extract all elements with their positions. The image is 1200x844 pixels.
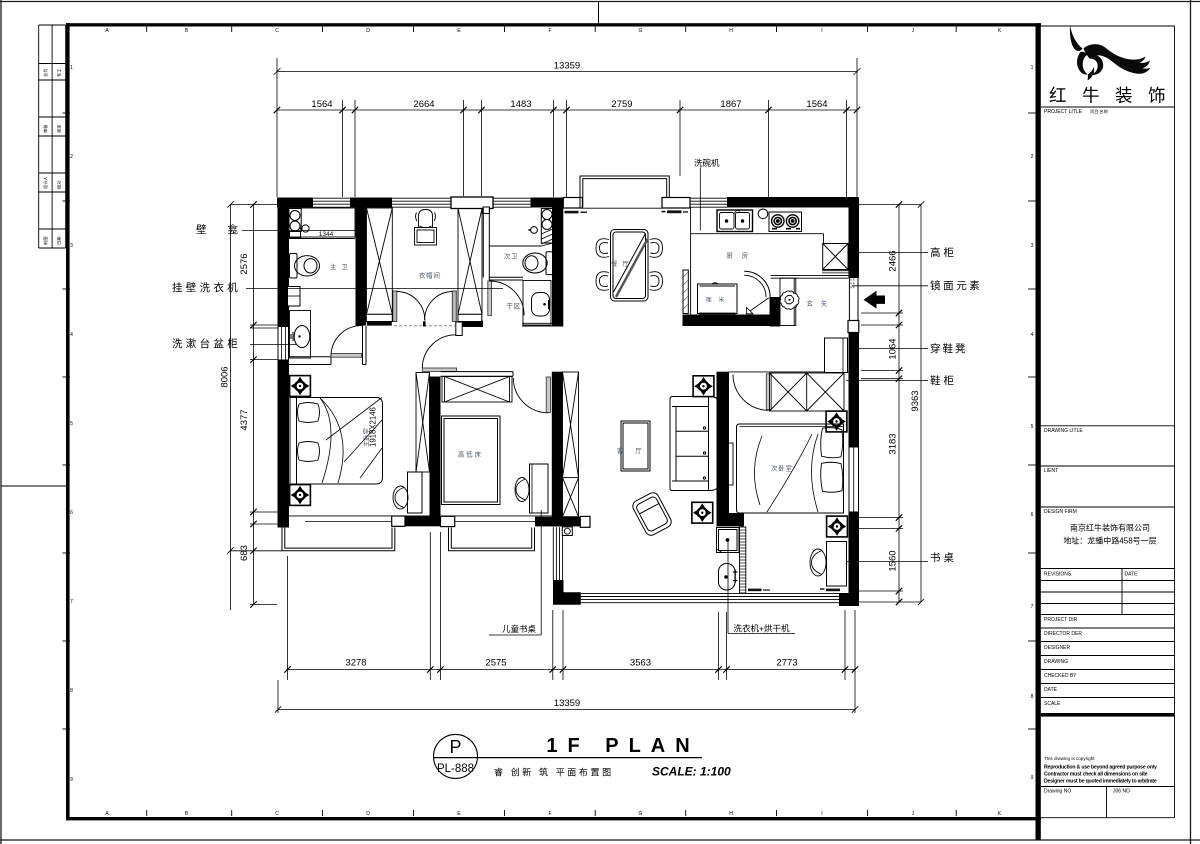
svg-text:3: 3	[1031, 243, 1034, 249]
svg-text:P: P	[449, 737, 461, 757]
svg-text:DESIGNER: DESIGNER	[1044, 645, 1071, 651]
svg-text:DIRECTOR DER: DIRECTOR DER	[1044, 631, 1082, 637]
svg-text:13359: 13359	[554, 698, 580, 709]
svg-text:主卧室: 主卧室	[362, 428, 371, 447]
svg-text:G: G	[639, 28, 643, 34]
svg-text:高低床: 高低床	[458, 450, 483, 459]
svg-text:1560: 1560	[888, 550, 899, 571]
svg-text:餐厅: 餐厅	[611, 259, 634, 268]
svg-text:F: F	[548, 28, 551, 34]
svg-text:2759: 2759	[611, 99, 632, 110]
svg-text:PROJECT LITLE: PROJECT LITLE	[1044, 109, 1083, 115]
svg-text:审核: 审核	[42, 124, 49, 133]
svg-text:SCALE: SCALE	[1044, 701, 1061, 707]
svg-text:5: 5	[1031, 424, 1034, 430]
svg-text:1064: 1064	[888, 338, 899, 359]
svg-text:6: 6	[1031, 512, 1034, 518]
svg-text:次卧室: 次卧室	[771, 464, 793, 473]
svg-text:5: 5	[70, 421, 73, 427]
svg-text:LIENT: LIENT	[1044, 468, 1058, 474]
svg-text:3: 3	[70, 243, 73, 249]
svg-text:F: F	[548, 811, 551, 817]
svg-text:683: 683	[239, 545, 250, 561]
svg-text:DRAWING: DRAWING	[1044, 659, 1068, 665]
svg-text:I: I	[821, 28, 822, 34]
svg-text:H: H	[729, 28, 733, 34]
svg-text:儿童书桌: 儿童书桌	[502, 624, 537, 634]
svg-text:J06 NO: J06 NO	[1113, 789, 1130, 795]
svg-text:书桌: 书桌	[930, 551, 957, 564]
svg-text:9: 9	[1031, 775, 1034, 781]
svg-text:壁龛: 壁龛	[196, 223, 259, 236]
svg-text:1: 1	[1031, 65, 1034, 71]
svg-text:审定: 审定	[56, 125, 63, 133]
svg-text:DESIGN FIRM: DESIGN FIRM	[1044, 509, 1077, 515]
svg-text:总负: 总负	[42, 69, 49, 77]
svg-text:客厅: 客厅	[617, 446, 654, 455]
svg-text:I: I	[821, 811, 822, 817]
svg-text:6: 6	[70, 510, 73, 516]
svg-text:1564: 1564	[311, 99, 332, 110]
svg-text:1344: 1344	[319, 231, 334, 238]
svg-text:1F PLAN: 1F PLAN	[546, 735, 699, 757]
svg-text:9363: 9363	[910, 390, 921, 411]
svg-text:专工: 专工	[56, 69, 63, 77]
svg-text:次卫: 次卫	[504, 252, 519, 261]
svg-text:PL-888: PL-888	[437, 763, 474, 775]
svg-text:穿鞋凳: 穿鞋凳	[930, 342, 968, 355]
svg-text:1564: 1564	[806, 99, 827, 110]
svg-text:Contractor must check all dime: Contractor must check all dimensions on …	[1044, 772, 1148, 778]
svg-text:南京红牛装饰有限公司: 南京红牛装饰有限公司	[1070, 523, 1150, 533]
svg-text:Reproduction & use beyond agre: Reproduction & use beyond agreed purpose…	[1044, 765, 1157, 771]
svg-text:1483: 1483	[510, 99, 531, 110]
svg-text:C: C	[275, 28, 279, 34]
svg-text:2: 2	[70, 154, 73, 160]
svg-text:1867: 1867	[720, 99, 741, 110]
svg-text:SCALE: 1:100: SCALE: 1:100	[652, 765, 731, 779]
svg-text:1: 1	[70, 65, 73, 71]
svg-text:REVISIONS: REVISIONS	[1044, 572, 1072, 578]
svg-text:4: 4	[1031, 332, 1034, 338]
svg-text:主卫: 主卫	[330, 262, 353, 271]
svg-text:2575: 2575	[485, 658, 506, 669]
svg-text:8006: 8006	[220, 366, 231, 387]
svg-text:2: 2	[1031, 154, 1034, 160]
svg-text:DATE: DATE	[1044, 687, 1058, 693]
svg-text:洗衣机+烘干机: 洗衣机+烘干机	[734, 624, 790, 634]
svg-text:8: 8	[70, 688, 73, 694]
svg-text:2466: 2466	[888, 250, 899, 271]
svg-text:红牛装饰: 红牛装饰	[1049, 86, 1181, 106]
svg-text:DRAWING LITLE: DRAWING LITLE	[1044, 428, 1083, 434]
svg-text:DATE: DATE	[1125, 572, 1139, 578]
svg-text:D: D	[366, 28, 370, 34]
svg-text:玄关: 玄关	[807, 299, 836, 308]
svg-text:2664: 2664	[413, 99, 434, 110]
svg-text:9: 9	[70, 777, 73, 783]
svg-text:Drawing NO: Drawing NO	[1044, 789, 1071, 795]
svg-text:睿 创新 筑 平面布置图: 睿 创新 筑 平面布置图	[494, 767, 614, 778]
svg-text:H: H	[729, 811, 733, 817]
svg-text:7: 7	[1031, 604, 1034, 610]
svg-text:地址：龙蟠中路458号一层: 地址：龙蟠中路458号一层	[1063, 536, 1156, 546]
svg-text:CHECKED BY: CHECKED BY	[1044, 673, 1077, 679]
svg-text:13359: 13359	[554, 61, 580, 72]
svg-text:2576: 2576	[239, 253, 250, 274]
svg-text:4: 4	[70, 332, 73, 338]
svg-text:This drawing is copyright: This drawing is copyright	[1044, 756, 1095, 761]
svg-text:3563: 3563	[630, 658, 651, 669]
svg-text:校对: 校对	[56, 181, 63, 189]
svg-text:Designer must be quoted immedi: Designer must be quoted immediately to a…	[1044, 779, 1157, 785]
svg-text:衣帽间: 衣帽间	[419, 271, 441, 280]
svg-text:3183: 3183	[888, 433, 899, 454]
svg-text:镜面元素: 镜面元素	[930, 279, 982, 292]
svg-text:干区: 干区	[507, 302, 522, 310]
svg-text:设计人: 设计人	[42, 176, 49, 189]
svg-text:高柜: 高柜	[930, 246, 957, 259]
svg-text:厨房: 厨房	[727, 251, 758, 260]
svg-text:咖米: 咖米	[706, 296, 731, 304]
svg-text:D: D	[366, 811, 370, 817]
svg-text:2773: 2773	[776, 658, 797, 669]
svg-text:8: 8	[1031, 694, 1034, 700]
svg-text:7: 7	[70, 599, 73, 605]
svg-text:3278: 3278	[345, 658, 366, 669]
svg-text:鞋柜: 鞋柜	[930, 374, 957, 387]
svg-text:G: G	[639, 811, 643, 817]
svg-text:PROJECT DIR: PROJECT DIR	[1044, 617, 1078, 623]
svg-text:C: C	[275, 811, 279, 817]
svg-text:制图: 制图	[42, 237, 49, 245]
svg-text:项目 名称: 项目 名称	[1090, 108, 1108, 115]
svg-text:洗碗机: 洗碗机	[694, 158, 720, 168]
svg-text:4377: 4377	[239, 409, 250, 430]
